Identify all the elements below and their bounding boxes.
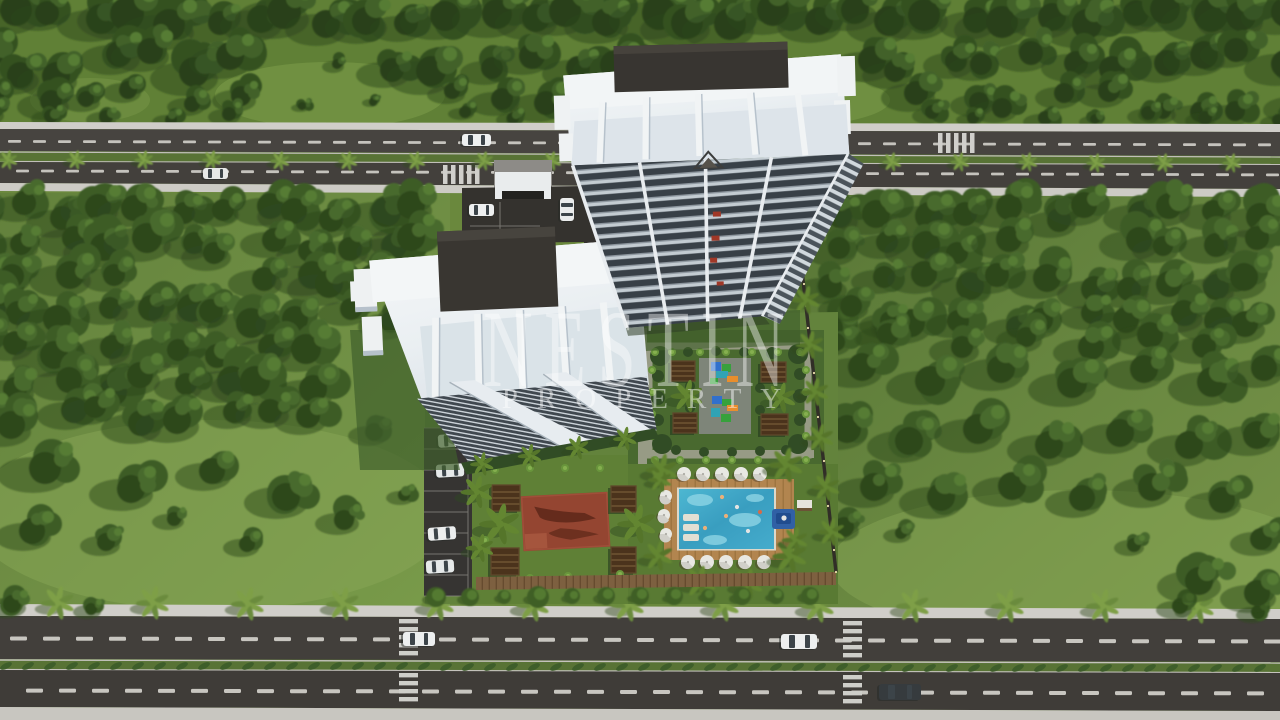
svg-text:PROPERTY: PROPERTY (502, 383, 801, 415)
